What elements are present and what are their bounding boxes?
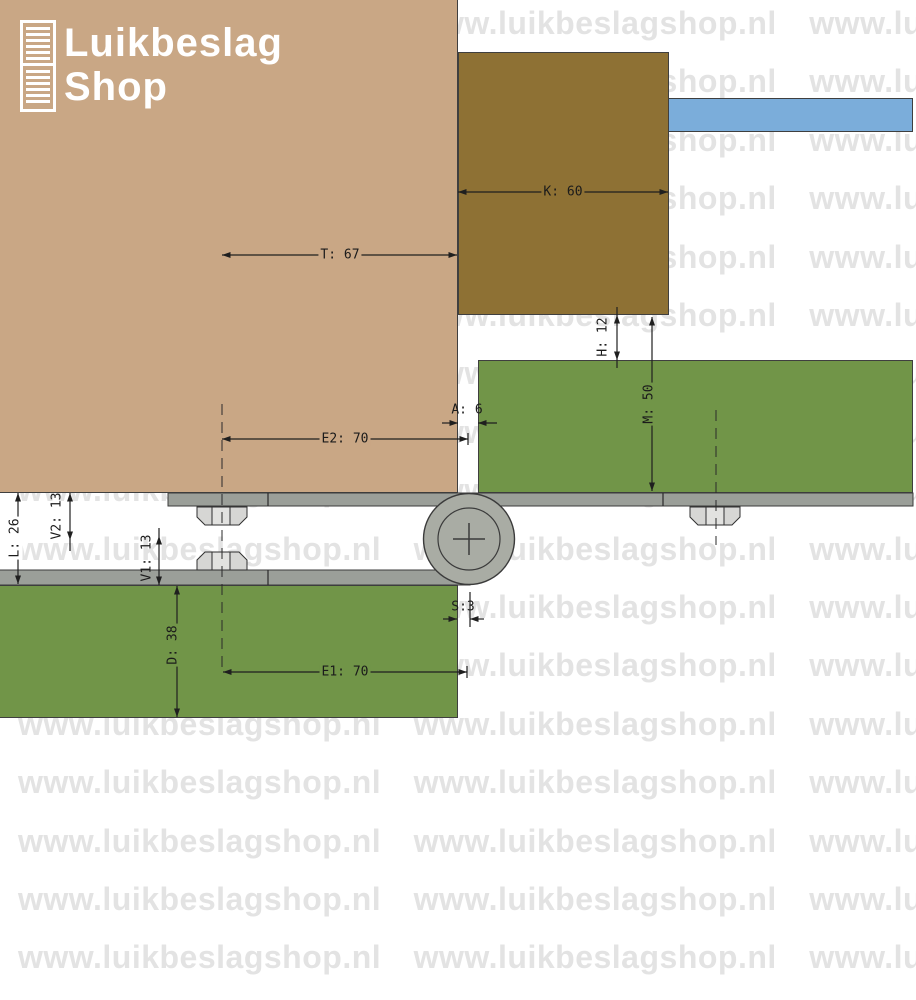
watermark-text-row: www.luikbeslagshop.nl www.luikbeslagshop…	[18, 825, 916, 857]
dim-M-label: M: 50	[642, 382, 657, 425]
brand-name-line1: Luikbeslag	[64, 21, 283, 65]
shutter-icon-louvers-top	[26, 27, 50, 62]
watermark-text-row: www.luikbeslagshop.nl www.luikbeslagshop…	[18, 941, 916, 973]
dim-H-label: H: 12	[596, 315, 611, 358]
beam-section-brown	[458, 52, 669, 315]
anchor-bar-blue	[668, 98, 913, 132]
watermark-text-row: www.luikbeslagshop.nl www.luikbeslagshop…	[18, 766, 916, 798]
dim-E2-label: E2: 70	[320, 432, 371, 447]
dim-D-label: D: 38	[166, 623, 181, 666]
dim-E1-label: E1: 70	[320, 665, 371, 680]
brand-name-line2: Shop	[64, 65, 283, 109]
dim-T-label: T: 67	[318, 248, 361, 263]
dim-A-label: A: 6	[449, 403, 484, 418]
dim-V2-label: V2: 13	[50, 491, 65, 542]
dim-K-label: K: 60	[541, 185, 584, 200]
dim-S-label: S:3	[449, 600, 476, 615]
watermark-text-row: www.luikbeslagshop.nl www.luikbeslagshop…	[18, 883, 916, 915]
brand-name: Luikbeslag Shop	[64, 21, 283, 109]
dim-V1-label: V1: 13	[140, 533, 155, 584]
technical-drawing-page: www.luikbeslagshop.nl www.luikbeslagshop…	[0, 0, 916, 1000]
shutter-icon	[20, 20, 56, 112]
shutter-panel-upper	[478, 360, 913, 493]
dim-L-label: L: 26	[8, 516, 23, 559]
shutter-icon-divider	[20, 63, 56, 66]
shutter-icon-louvers-bottom	[26, 70, 50, 105]
shutter-panel-lower	[0, 585, 458, 718]
